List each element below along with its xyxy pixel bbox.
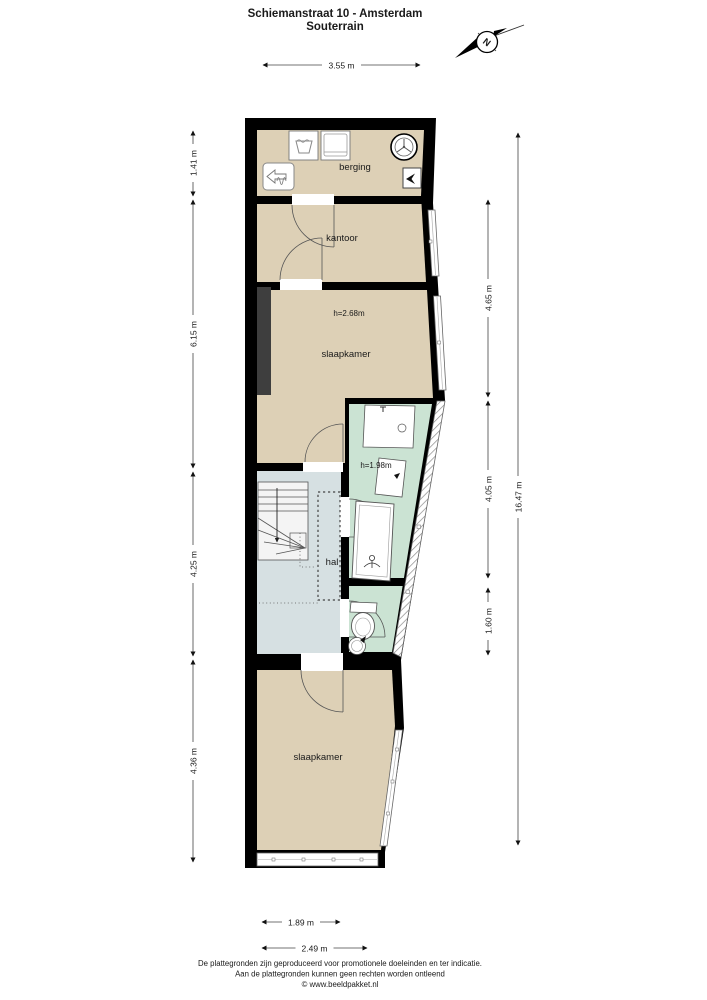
dimension-left-4: 4.36 m xyxy=(187,660,200,862)
dimension-total-height: 16.47 m xyxy=(512,133,525,845)
dimension-right-3: 1.60 m xyxy=(482,588,495,655)
floor-plan: berging kantoor h=2.68m slaapkamer h=1.9… xyxy=(245,118,446,868)
svg-text:3.55 m: 3.55 m xyxy=(329,60,355,70)
dimension-bottom-2: 2.49 m xyxy=(262,942,367,955)
footer-line-2: Aan de plattegronden kunnen geen rechten… xyxy=(235,970,445,979)
svg-text:16.47 m: 16.47 m xyxy=(513,482,523,513)
footer-line-1: De plattegronden zijn geproduceerd voor … xyxy=(198,959,482,968)
svg-text:1.41 m: 1.41 m xyxy=(188,150,198,176)
label-height-slaapkamer: h=2.68m xyxy=(333,309,365,318)
tap-icon xyxy=(403,168,421,188)
dimension-right-1: 4.65 m xyxy=(482,200,495,397)
chimney-block xyxy=(257,287,271,395)
dimension-bottom-1: 1.89 m xyxy=(262,916,340,929)
page-title: Schiemanstraat 10 - Amsterdam xyxy=(248,8,423,20)
label-berging: berging xyxy=(339,162,371,173)
svg-text:4.65 m: 4.65 m xyxy=(483,285,493,311)
svg-text:4.25 m: 4.25 m xyxy=(188,551,198,577)
dimension-left-2: 6.15 m xyxy=(187,200,200,468)
svg-text:6.15 m: 6.15 m xyxy=(188,321,198,347)
floorplan-canvas: Schiemanstraat 10 - Amsterdam Souterrain… xyxy=(0,0,707,1000)
ventilation-unit-icon xyxy=(391,134,417,160)
window-bottom-wall xyxy=(257,853,378,866)
label-hal: hal xyxy=(326,557,339,568)
washing-machine-icon xyxy=(321,131,350,160)
stairs-icon xyxy=(258,482,308,560)
svg-text:1.89 m: 1.89 m xyxy=(288,917,314,927)
washbasin-icon xyxy=(289,131,318,160)
bathtub-icon xyxy=(352,501,394,581)
floorplan-page: Schiemanstraat 10 - Amsterdam Souterrain… xyxy=(0,0,707,1000)
label-kantoor: kantoor xyxy=(326,233,358,244)
dimension-left-1: 1.41 m xyxy=(187,131,200,196)
page-subtitle: Souterrain xyxy=(306,21,364,33)
label-slaapkamer-bottom: slaapkamer xyxy=(293,752,342,763)
vent-arrow-icon xyxy=(263,163,294,190)
dimension-left-3: 4.25 m xyxy=(187,472,200,656)
label-slaapkamer-top: slaapkamer xyxy=(321,349,370,360)
svg-text:4.05 m: 4.05 m xyxy=(483,476,493,502)
svg-text:4.36 m: 4.36 m xyxy=(188,748,198,774)
footer-line-3: © www.beeldpakket.nl xyxy=(302,980,379,989)
svg-text:1.60 m: 1.60 m xyxy=(483,608,493,634)
label-height-badkamer: h=1.98m xyxy=(360,461,392,470)
compass-icon: N xyxy=(455,25,524,58)
vanity-counter xyxy=(363,405,415,448)
dimension-right-2: 4.05 m xyxy=(482,401,495,578)
dimension-top-width: 3.55 m xyxy=(263,59,420,72)
footer-disclaimer: De plattegronden zijn geproduceerd voor … xyxy=(198,959,482,989)
svg-text:2.49 m: 2.49 m xyxy=(302,943,328,953)
